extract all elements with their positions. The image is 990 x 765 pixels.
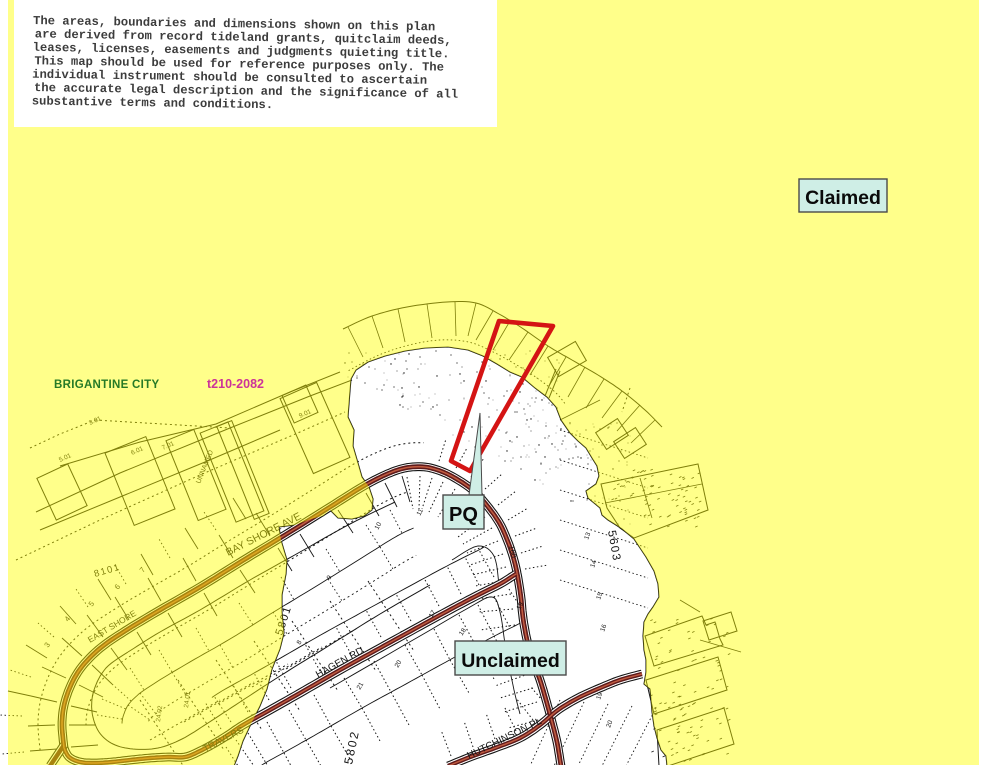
svg-text:Unclaimed: Unclaimed bbox=[461, 650, 560, 672]
svg-text:PQ: PQ bbox=[449, 504, 478, 526]
svg-text:Claimed: Claimed bbox=[805, 187, 881, 209]
svg-text:t210-2082: t210-2082 bbox=[207, 377, 264, 391]
svg-text:BRIGANTINE CITY: BRIGANTINE CITY bbox=[54, 379, 159, 391]
